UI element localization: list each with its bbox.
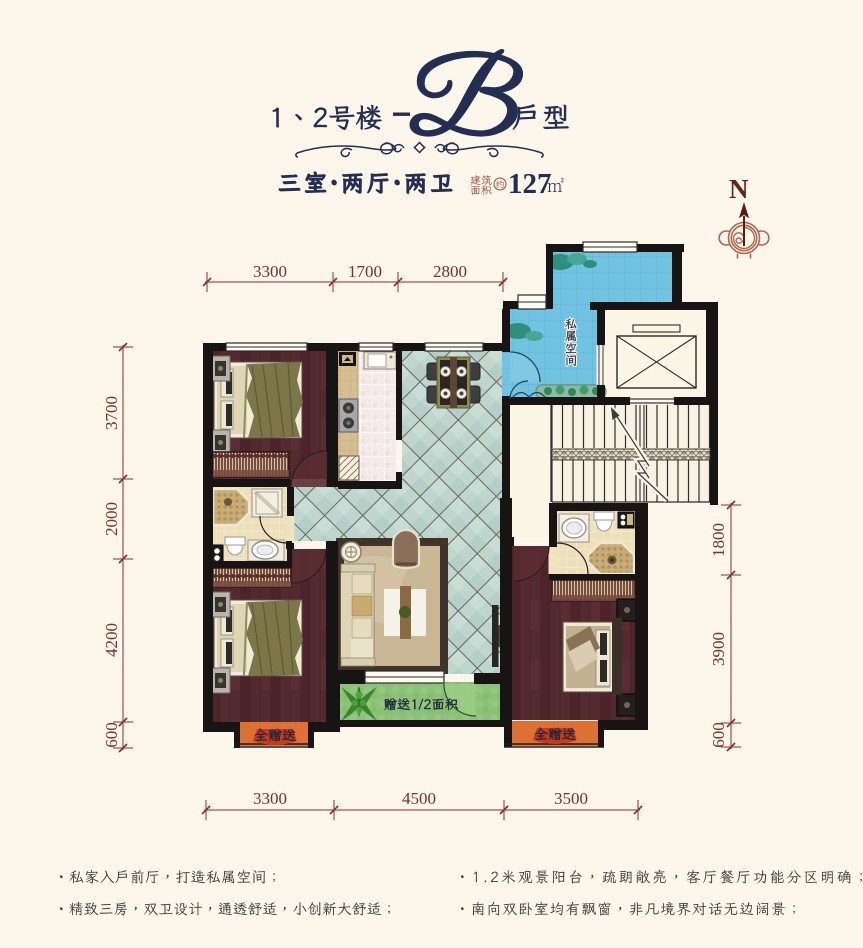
svg-text:1700: 1700 [348,262,382,281]
svg-text:600: 600 [709,722,728,748]
svg-text:2800: 2800 [433,262,467,281]
svg-text:4200: 4200 [102,623,121,657]
svg-text:3300: 3300 [253,789,287,808]
svg-text:3900: 3900 [709,632,728,666]
svg-text:2000: 2000 [102,502,121,536]
svg-text:3500: 3500 [554,789,588,808]
svg-text:N: N [729,174,749,204]
svg-text:1800: 1800 [709,523,728,557]
svg-text:4500: 4500 [402,789,436,808]
svg-text:3300: 3300 [253,262,287,281]
svg-text:600: 600 [102,722,121,748]
svg-text:127: 127 [508,168,552,200]
svg-text:3700: 3700 [102,396,121,430]
